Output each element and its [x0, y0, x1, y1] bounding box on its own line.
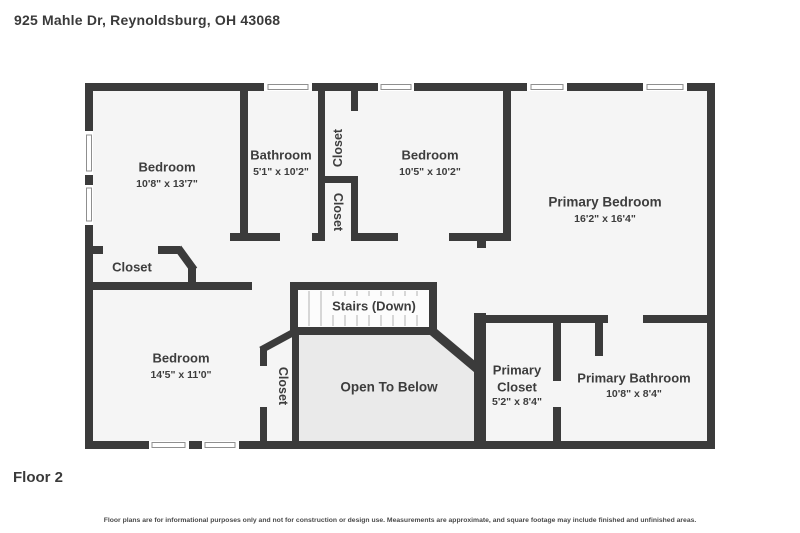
wall-outer-right — [707, 83, 715, 449]
wall-closet-bath-upper — [553, 323, 561, 381]
floor-plan-page: 925 Mahle Dr, Reynoldsburg, OH 43068 — [0, 0, 800, 533]
window-symbol — [378, 83, 414, 91]
room-label-closet-hall: Closet — [112, 260, 152, 275]
room-label-open-to-below: Open To Below — [340, 380, 438, 395]
wall-bedroom3-top — [85, 282, 252, 290]
window-symbol — [149, 441, 189, 449]
wall-bath-stub — [595, 323, 603, 356]
floor-label: Floor 2 — [13, 469, 63, 486]
window-symbol — [85, 131, 93, 175]
window-symbol — [527, 83, 567, 91]
room-dims-bedroom2: 10'5" x 10'2" — [399, 166, 461, 178]
wall-closet3-left-lower — [260, 407, 267, 441]
wall-primary-bottom-right — [643, 315, 707, 323]
room-dims-primary-bathroom: 10'8" x 8'4" — [606, 388, 662, 400]
wall-primary-bottom-left — [477, 315, 608, 323]
room-dims-bedroom1: 10'8" x 13'7" — [136, 178, 198, 190]
room-dims-primary-closet: 5'2" x 8'4" — [492, 396, 542, 408]
disclaimer-text: Floor plans are for informational purpos… — [0, 517, 800, 524]
room-label-primary-closet-line1: Primary — [493, 363, 542, 378]
floor-plan-drawing: Bedroom 10'8" x 13'7" Bathroom 5'1" x 10… — [0, 0, 800, 533]
room-label-closet-top: Closet — [331, 128, 345, 167]
room-label-primary-bedroom: Primary Bedroom — [548, 195, 661, 210]
window-symbol — [264, 83, 312, 91]
window-symbol — [202, 441, 239, 449]
wall-bedroom2-primary — [503, 91, 511, 233]
wall-bedroom2-bottom-left — [357, 233, 398, 241]
room-label-primary-closet-line2: Closet — [497, 380, 537, 395]
room-dims-bathroom: 5'1" x 10'2" — [253, 166, 309, 178]
room-label-stairs: Stairs (Down) — [332, 299, 416, 314]
wall-bathroom-closets — [318, 91, 325, 241]
room-label-closet-mid: Closet — [331, 193, 345, 232]
window-symbol — [85, 185, 93, 225]
wall-stairs-top — [290, 282, 437, 290]
room-label-bedroom3: Bedroom — [152, 351, 209, 366]
room-label-primary-bathroom: Primary Bathroom — [577, 371, 690, 386]
wall-closet-divider — [318, 176, 358, 183]
window-symbol — [643, 83, 687, 91]
room-label-bathroom: Bathroom — [250, 148, 311, 163]
wall-closetmid-bottom-left — [312, 233, 325, 241]
wall-stairs-bottom — [298, 327, 429, 335]
room-dims-primary-bedroom: 16'2" x 16'4" — [574, 213, 636, 225]
wall-bedroom1-bathroom — [240, 91, 248, 241]
room-label-bedroom2: Bedroom — [401, 148, 458, 163]
room-label-bedroom1: Bedroom — [138, 160, 195, 175]
wall-closet3-right — [292, 330, 299, 441]
wall-closet-bedroom2-upper — [351, 91, 358, 111]
wall-bedroom1-bottom-right — [230, 233, 248, 241]
room-dims-bedroom3: 14'5" x 11'0" — [150, 369, 211, 381]
wall-otb-primarycloset — [474, 313, 486, 449]
wall-closet-bath-lower — [553, 407, 561, 449]
wall-bedroom2-bottom-right — [449, 233, 511, 241]
wall-bedroom1-bottom-left — [93, 246, 103, 254]
wall-closet-bedroom2-lower — [351, 176, 358, 241]
room-label-closet-bedroom3: Closet — [276, 367, 290, 406]
